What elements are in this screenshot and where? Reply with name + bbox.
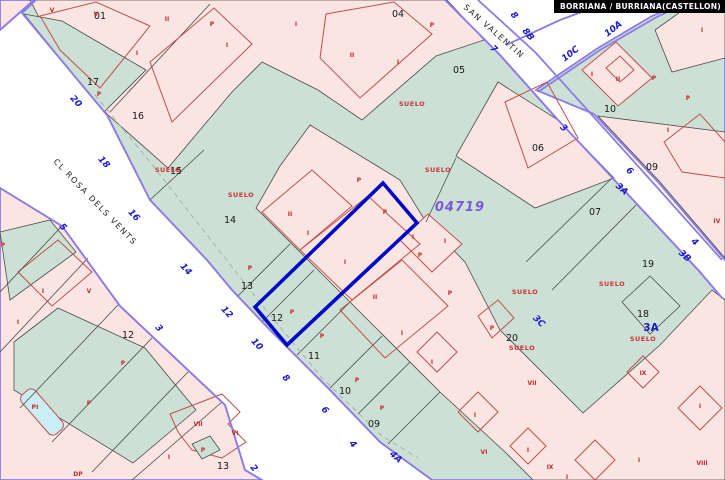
parcel-number-label[interactable]: 06 — [532, 143, 544, 154]
suelo-label-label: SUELO — [399, 100, 425, 108]
municipality-banner: BORRIANA / BURRIANA(CASTELLON) — [554, 0, 725, 13]
floor-count-label-label: V — [94, 11, 99, 18]
parcel-number-label[interactable]: 19 — [642, 259, 654, 270]
cadastral-map-viewer: CL ROSA DELS VENTSSAN VALENTIN0471901040… — [0, 0, 725, 480]
floor-count-label-label: I — [17, 319, 19, 326]
floor-count-label-label: I — [431, 359, 433, 366]
floor-count-label-label: I — [699, 403, 701, 410]
floor-count-label-label: P — [380, 405, 385, 412]
suelo-label-label: SUELO — [512, 288, 538, 296]
block-reference-label: 04719 — [435, 200, 485, 215]
floor-count-label-label: I — [307, 230, 309, 237]
parcel-number-label[interactable]: 05 — [453, 65, 465, 76]
house-number-label: 6 — [319, 405, 331, 416]
parcel-number-label[interactable]: 17 — [87, 77, 99, 88]
suelo-label-label: SUELO — [630, 335, 656, 343]
house-number-label: 18 — [96, 155, 112, 171]
house-number-label: 8 — [280, 373, 292, 384]
floor-count-label-label: P — [248, 265, 253, 272]
floor-count-label-label: P — [87, 400, 92, 407]
house-number-label: 20 — [68, 94, 84, 110]
suelo-label-label: SUELO — [425, 166, 451, 174]
floor-count-label-label: II — [165, 16, 169, 23]
floor-count-label-label: II — [350, 52, 354, 59]
house-number-label: 3A — [643, 322, 659, 334]
house-number-label: 16 — [126, 208, 142, 224]
parcel-number-label[interactable]: 20 — [506, 333, 518, 344]
floor-count-label-label: I — [401, 330, 403, 337]
floor-count-label-label: P — [490, 325, 495, 332]
floor-count-label-label: I — [701, 27, 703, 34]
floor-count-label-label: IV — [714, 218, 721, 225]
floor-count-label-label: P — [355, 377, 360, 384]
floor-count-label-label: VI — [481, 449, 488, 456]
floor-count-label-label: VIII — [696, 460, 707, 467]
floor-count-label-label: P — [430, 22, 435, 29]
floor-count-label-label: P — [686, 95, 691, 102]
floor-count-label-label: I — [527, 447, 529, 454]
parcel-number-label[interactable]: 10 — [604, 104, 616, 115]
suelo-label-label: SUELO — [155, 166, 181, 174]
floor-count-label-label: I — [667, 127, 669, 134]
floor-count-label-label: P — [320, 333, 325, 340]
parcel-number-label[interactable]: 13 — [217, 461, 229, 472]
floor-count-label-label: VII — [193, 421, 202, 428]
parcel-number-label[interactable]: 13 — [241, 281, 253, 292]
house-number-label: 3 — [153, 323, 165, 334]
floor-count-label-label: IX — [547, 464, 554, 471]
floor-count-label-label: I — [591, 71, 593, 78]
parcel-number-label[interactable]: 12 — [271, 313, 283, 324]
floor-count-label-label: P — [448, 290, 453, 297]
floor-count-label-label: I — [226, 42, 228, 49]
floor-count-label-label: P — [357, 177, 362, 184]
cadastral-map-canvas[interactable]: CL ROSA DELS VENTSSAN VALENTIN0471901040… — [0, 0, 725, 480]
floor-count-label-label: I — [397, 59, 399, 66]
floor-count-label-label: PI — [32, 404, 39, 411]
house-number-label: 14 — [178, 262, 194, 278]
parcel-number-label[interactable]: 14 — [224, 215, 236, 226]
house-number-label: 4 — [346, 438, 358, 450]
house-number-label: 12 — [219, 305, 235, 321]
floor-count-label-label: I — [412, 234, 414, 241]
parcel-number-label[interactable]: 09 — [368, 419, 380, 430]
floor-count-label-label: VII — [527, 380, 536, 387]
parcel-number-label[interactable]: 18 — [637, 309, 649, 320]
house-number-label: 8 — [508, 10, 520, 21]
floor-count-label-label: II — [616, 76, 620, 83]
parcel-number-label[interactable]: 16 — [132, 111, 144, 122]
floor-count-label-label: I — [136, 50, 138, 57]
floor-count-label-label: P — [290, 309, 295, 316]
parcel-number-label[interactable]: 04 — [392, 9, 404, 20]
floor-count-label-label: V — [50, 7, 55, 14]
floor-count-label-label: I — [168, 454, 170, 461]
floor-count-label-label: P — [210, 21, 215, 28]
house-number-label: 4 — [688, 236, 700, 248]
floor-count-label-label: P — [652, 75, 657, 82]
suelo-label-label: SUELO — [228, 191, 254, 199]
floor-count-label-label: I — [295, 21, 297, 28]
house-number-label: 10 — [249, 337, 265, 353]
floor-count-label-label: P — [201, 447, 206, 454]
floor-count-label-label: VI — [232, 430, 239, 437]
floor-count-label-label: II — [373, 294, 377, 301]
house-number-label: 6 — [624, 166, 635, 178]
suelo-label-label: SUELO — [509, 344, 535, 352]
floor-count-label-label: I — [474, 412, 476, 419]
floor-count-label-label: IX — [640, 370, 647, 377]
floor-count-label-label: II — [288, 211, 292, 218]
floor-count-label-label: I — [638, 457, 640, 464]
floor-count-label-label: P — [121, 360, 126, 367]
parcel-number-label[interactable]: 09 — [646, 162, 658, 173]
floor-count-label-label: I — [42, 288, 44, 295]
parcel-number-label[interactable]: 11 — [308, 351, 320, 362]
floor-count-label-label: DP — [73, 471, 83, 478]
floor-count-label-label: I — [344, 259, 346, 266]
parcel-number-label[interactable]: 12 — [122, 330, 134, 341]
parcel-number-label[interactable]: 07 — [589, 207, 601, 218]
floor-count-label-label: V — [87, 288, 92, 295]
municipality-name: BORRIANA / BURRIANA(CASTELLON) — [560, 2, 721, 11]
floor-count-label-label: P — [1, 242, 6, 249]
suelo-label-label: SUELO — [599, 280, 625, 288]
floor-count-label-label: P — [383, 209, 388, 216]
floor-count-label-label: I — [566, 474, 568, 480]
floor-count-label-label: I — [444, 238, 446, 245]
parcel-number-label[interactable]: 10 — [339, 386, 351, 397]
floor-count-label-label: P — [97, 91, 102, 98]
floor-count-label-label: P — [418, 252, 423, 259]
